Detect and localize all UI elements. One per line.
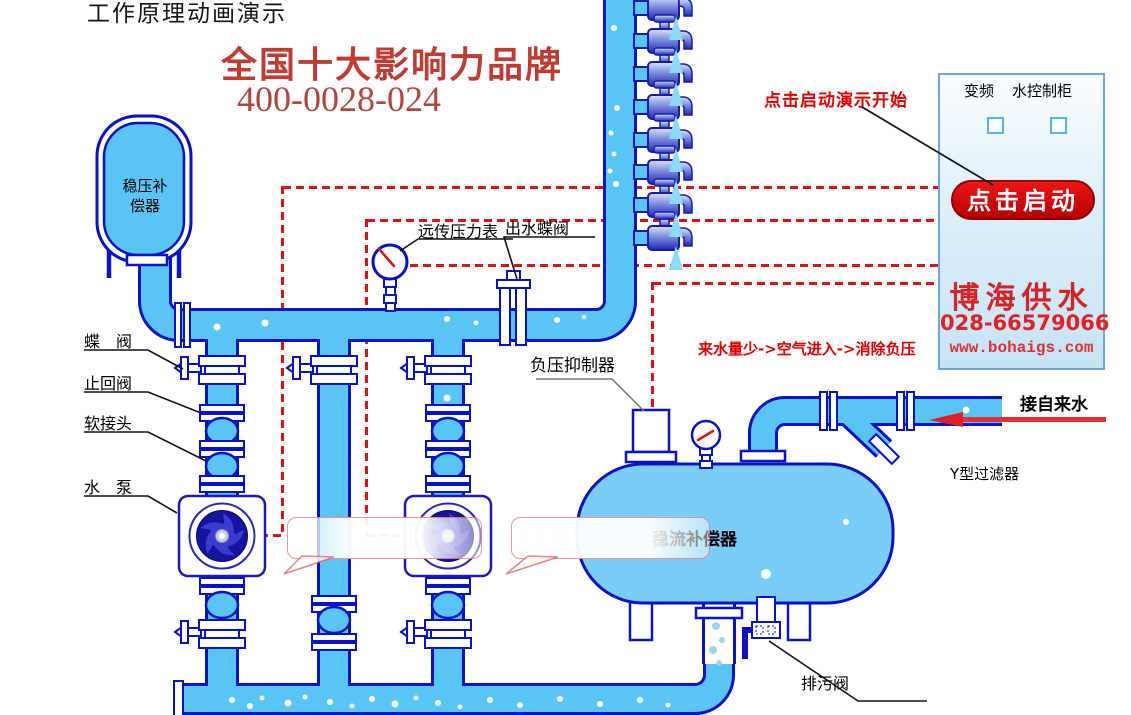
vfd-label: 变频 (964, 80, 994, 101)
downpipe-flange (696, 608, 742, 618)
animation-callout-2 (511, 517, 710, 559)
butterfly-valve-1-bottom[interactable] (175, 620, 245, 648)
soft-joint-2 (318, 607, 350, 633)
drain-valve-label: 排污阀 (801, 670, 849, 694)
indicator-left[interactable] (987, 117, 1004, 134)
remote-gauge-label: 远传压力表 (418, 218, 498, 242)
check-valve-label: 止回阀 (84, 370, 132, 394)
brand-hotline: 400-0028-024 (237, 78, 441, 120)
soft-joint-1c (206, 592, 238, 618)
vacuum-suppressor-label: 负压抑制器 (530, 351, 615, 376)
butterfly-valve-3[interactable] (401, 356, 471, 384)
butterfly-valve-2[interactable] (287, 356, 357, 384)
flange-2b (312, 634, 356, 650)
faucet-8[interactable] (634, 212, 692, 250)
page-title: 工作原理动画演示 (87, 0, 287, 28)
surge-tank-label-line1: 稳压补 (103, 176, 187, 196)
flow-note: 来水量少->空气进入->消除负压 (698, 338, 916, 359)
y-strainer-label: Y型过滤器 (950, 463, 1019, 484)
tap-water-inlet-label: 接自来水 (1020, 390, 1088, 415)
manifold-end-cap (174, 681, 183, 715)
app-canvas: { "page_title": "工作原理动画演示", "brand": { "… (0, 0, 1131, 715)
surge-tank-label-line2: 偿器 (103, 196, 187, 216)
soft-joint-3c (432, 592, 464, 618)
start-hint: 点击启动演示开始 (764, 86, 908, 111)
company-phone: 028-66579066 (940, 311, 1103, 335)
butterfly-valve-3-bottom[interactable] (401, 620, 471, 648)
start-demo-button[interactable]: 点击启动 (951, 180, 1095, 220)
water-pump-label: 水 泵 (84, 474, 132, 498)
faucet-column (634, 0, 692, 270)
butterfly-valve-1[interactable] (175, 356, 245, 384)
tank-pressure-gauge (692, 421, 720, 468)
cabinet-label: 水控制柜 (1012, 80, 1072, 101)
soft-joint-label: 软接头 (84, 410, 132, 434)
inlet-flange (741, 451, 785, 461)
drain-valve[interactable] (745, 597, 780, 659)
company-website[interactable]: www.bohaigs.com (940, 339, 1103, 357)
vacuum-suppressor (626, 410, 676, 462)
outlet-valve-label: 出水蝶阀 (505, 215, 569, 239)
animation-callout-1 (287, 517, 482, 559)
water-pump-1[interactable] (179, 496, 265, 576)
butterfly-valve-label: 蝶 阀 (84, 328, 132, 352)
control-cabinet-panel: 变频 水控制柜 点击启动 博海供水 028-66579066 www.bohai… (938, 73, 1105, 370)
indicator-right[interactable] (1050, 117, 1067, 134)
suppressor-leader-line (536, 379, 644, 411)
flange-1b (200, 476, 244, 492)
flange-3b (426, 476, 470, 492)
surge-tank-label: 稳压补 偿器 (103, 176, 187, 216)
remote-pressure-gauge (373, 245, 407, 311)
